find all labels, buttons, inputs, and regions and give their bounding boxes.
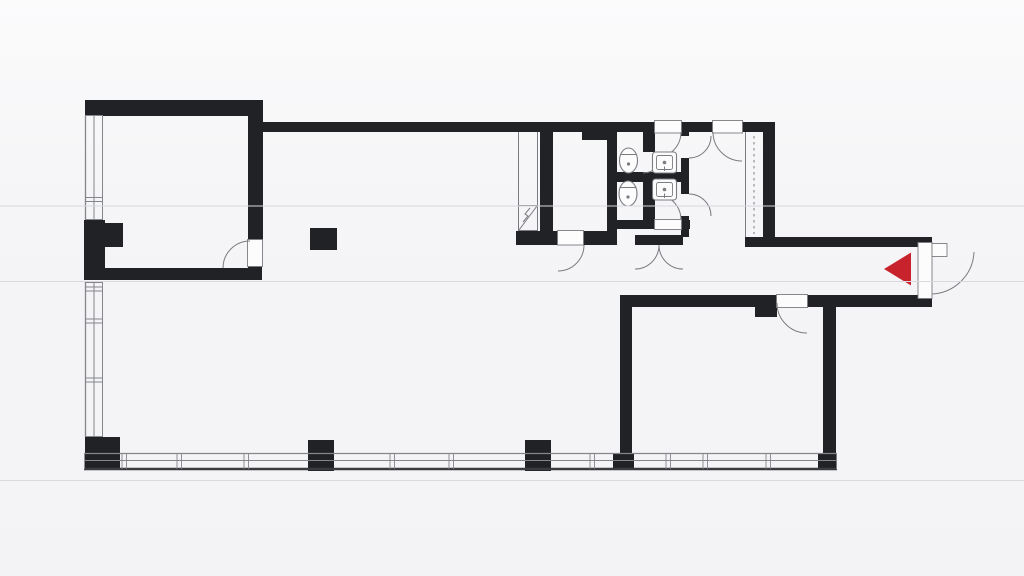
wall-top-main: [258, 122, 655, 132]
toilet-bowl-1: [620, 148, 638, 173]
door-arc-room1: [223, 241, 250, 268]
wall-shaft-left: [540, 130, 553, 233]
door-frame-shaft: [558, 231, 584, 246]
door-frame-room2: [777, 295, 808, 308]
duct-symbol-diagonal: [519, 206, 537, 230]
pillar-center: [310, 228, 337, 250]
wall-wc-right-b: [681, 158, 689, 194]
door-frame-entrance-jamb: [918, 243, 932, 299]
door-arc-entrance: [932, 252, 974, 294]
door-arc-vestibule-2: [689, 194, 711, 216]
floor-plan-canvas: [0, 0, 1024, 576]
toilet-drain-2: [626, 195, 629, 198]
wall-corridor-top: [745, 237, 932, 247]
door-leaf-entrance: [932, 244, 947, 257]
door-arc-double-right: [659, 245, 683, 269]
pier-room2-left-base: [613, 453, 634, 470]
door-arc-shaft: [558, 245, 584, 271]
sink-faucet-2: [663, 188, 667, 192]
wall-left-pier: [84, 220, 105, 280]
door-frame-wc-bottom: [655, 220, 682, 230]
toilet-bowl-2: [619, 181, 637, 206]
wall-wc-lower-door-bar: [635, 235, 683, 245]
pillar-band-1: [308, 440, 334, 471]
wall-door-hinge-stub: [755, 307, 777, 317]
wall-wc-bottom-left: [608, 220, 655, 229]
wall-room1-right: [248, 100, 263, 241]
wall-wc-right-a: [681, 122, 689, 136]
sink-faucet-1: [663, 161, 667, 165]
wall-corridor-bottom-right: [807, 295, 932, 307]
wall-wc-mid-upper: [643, 132, 655, 152]
wall-wc-right-c: [681, 216, 689, 237]
wall-left-pier-stub: [105, 223, 123, 247]
pillar-band-2: [525, 440, 551, 471]
door-arc-vestibule-1: [689, 136, 711, 158]
wall-shaft-bottom-left: [516, 231, 558, 245]
door-frame-vestibule-top: [713, 121, 743, 134]
door-arc-vestibule-top: [713, 132, 742, 161]
wall-room2-left: [620, 307, 632, 453]
pier-room2-right-base: [818, 453, 837, 470]
wall-top-step: [582, 132, 607, 140]
entrance-arrow: [884, 253, 911, 286]
wall-corridor-bottom-left: [620, 295, 777, 307]
toilet-drain-1: [627, 162, 630, 165]
door-frame-room1: [248, 240, 263, 267]
wall-room1-bottom: [85, 268, 262, 280]
door-frame-wc-top: [655, 121, 682, 134]
wall-room1-top: [85, 100, 262, 116]
wall-right-block: [763, 130, 775, 240]
door-arc-double-left: [635, 245, 659, 269]
wall-room2-right: [823, 307, 836, 457]
floor-plan-scan: [0, 0, 1024, 576]
